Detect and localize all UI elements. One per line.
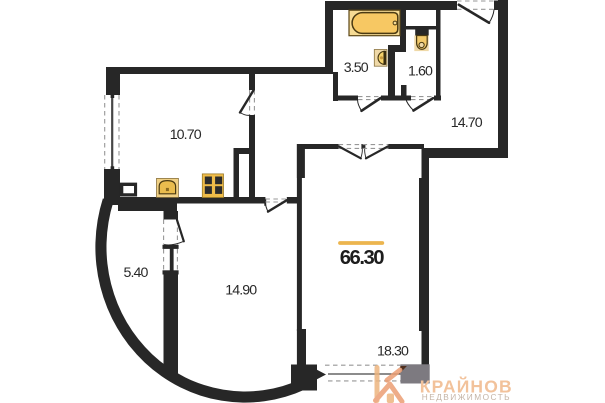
svg-text:5.40: 5.40 xyxy=(123,265,148,281)
svg-text:1.60: 1.60 xyxy=(408,64,433,80)
svg-text:НЕДВИЖИМОСТЬ: НЕДВИЖИМОСТЬ xyxy=(422,392,511,402)
svg-text:14.90: 14.90 xyxy=(225,282,257,298)
svg-text:10.70: 10.70 xyxy=(170,127,202,143)
svg-text:3.50: 3.50 xyxy=(344,60,369,76)
svg-text:14.70: 14.70 xyxy=(451,115,483,131)
svg-text:66.30: 66.30 xyxy=(340,247,384,269)
svg-text:18.30: 18.30 xyxy=(377,343,409,359)
